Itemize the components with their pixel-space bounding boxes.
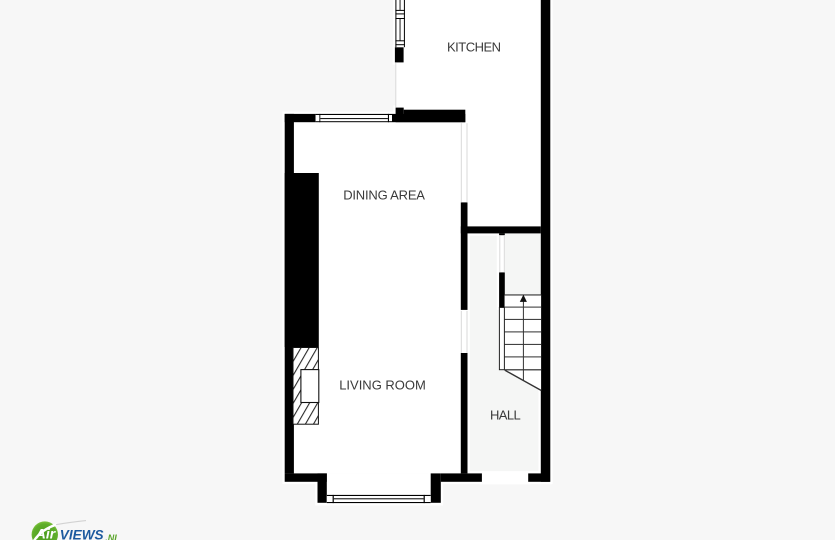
svg-text:DINING AREA: DINING AREA	[343, 188, 425, 203]
svg-text:VIEWS: VIEWS	[60, 528, 104, 540]
svg-text:KITCHEN: KITCHEN	[447, 39, 501, 54]
svg-text:.NL: .NL	[105, 533, 120, 540]
svg-text:HALL: HALL	[490, 407, 520, 422]
svg-text:LIVING ROOM: LIVING ROOM	[339, 378, 426, 393]
svg-text:Air: Air	[35, 526, 57, 540]
